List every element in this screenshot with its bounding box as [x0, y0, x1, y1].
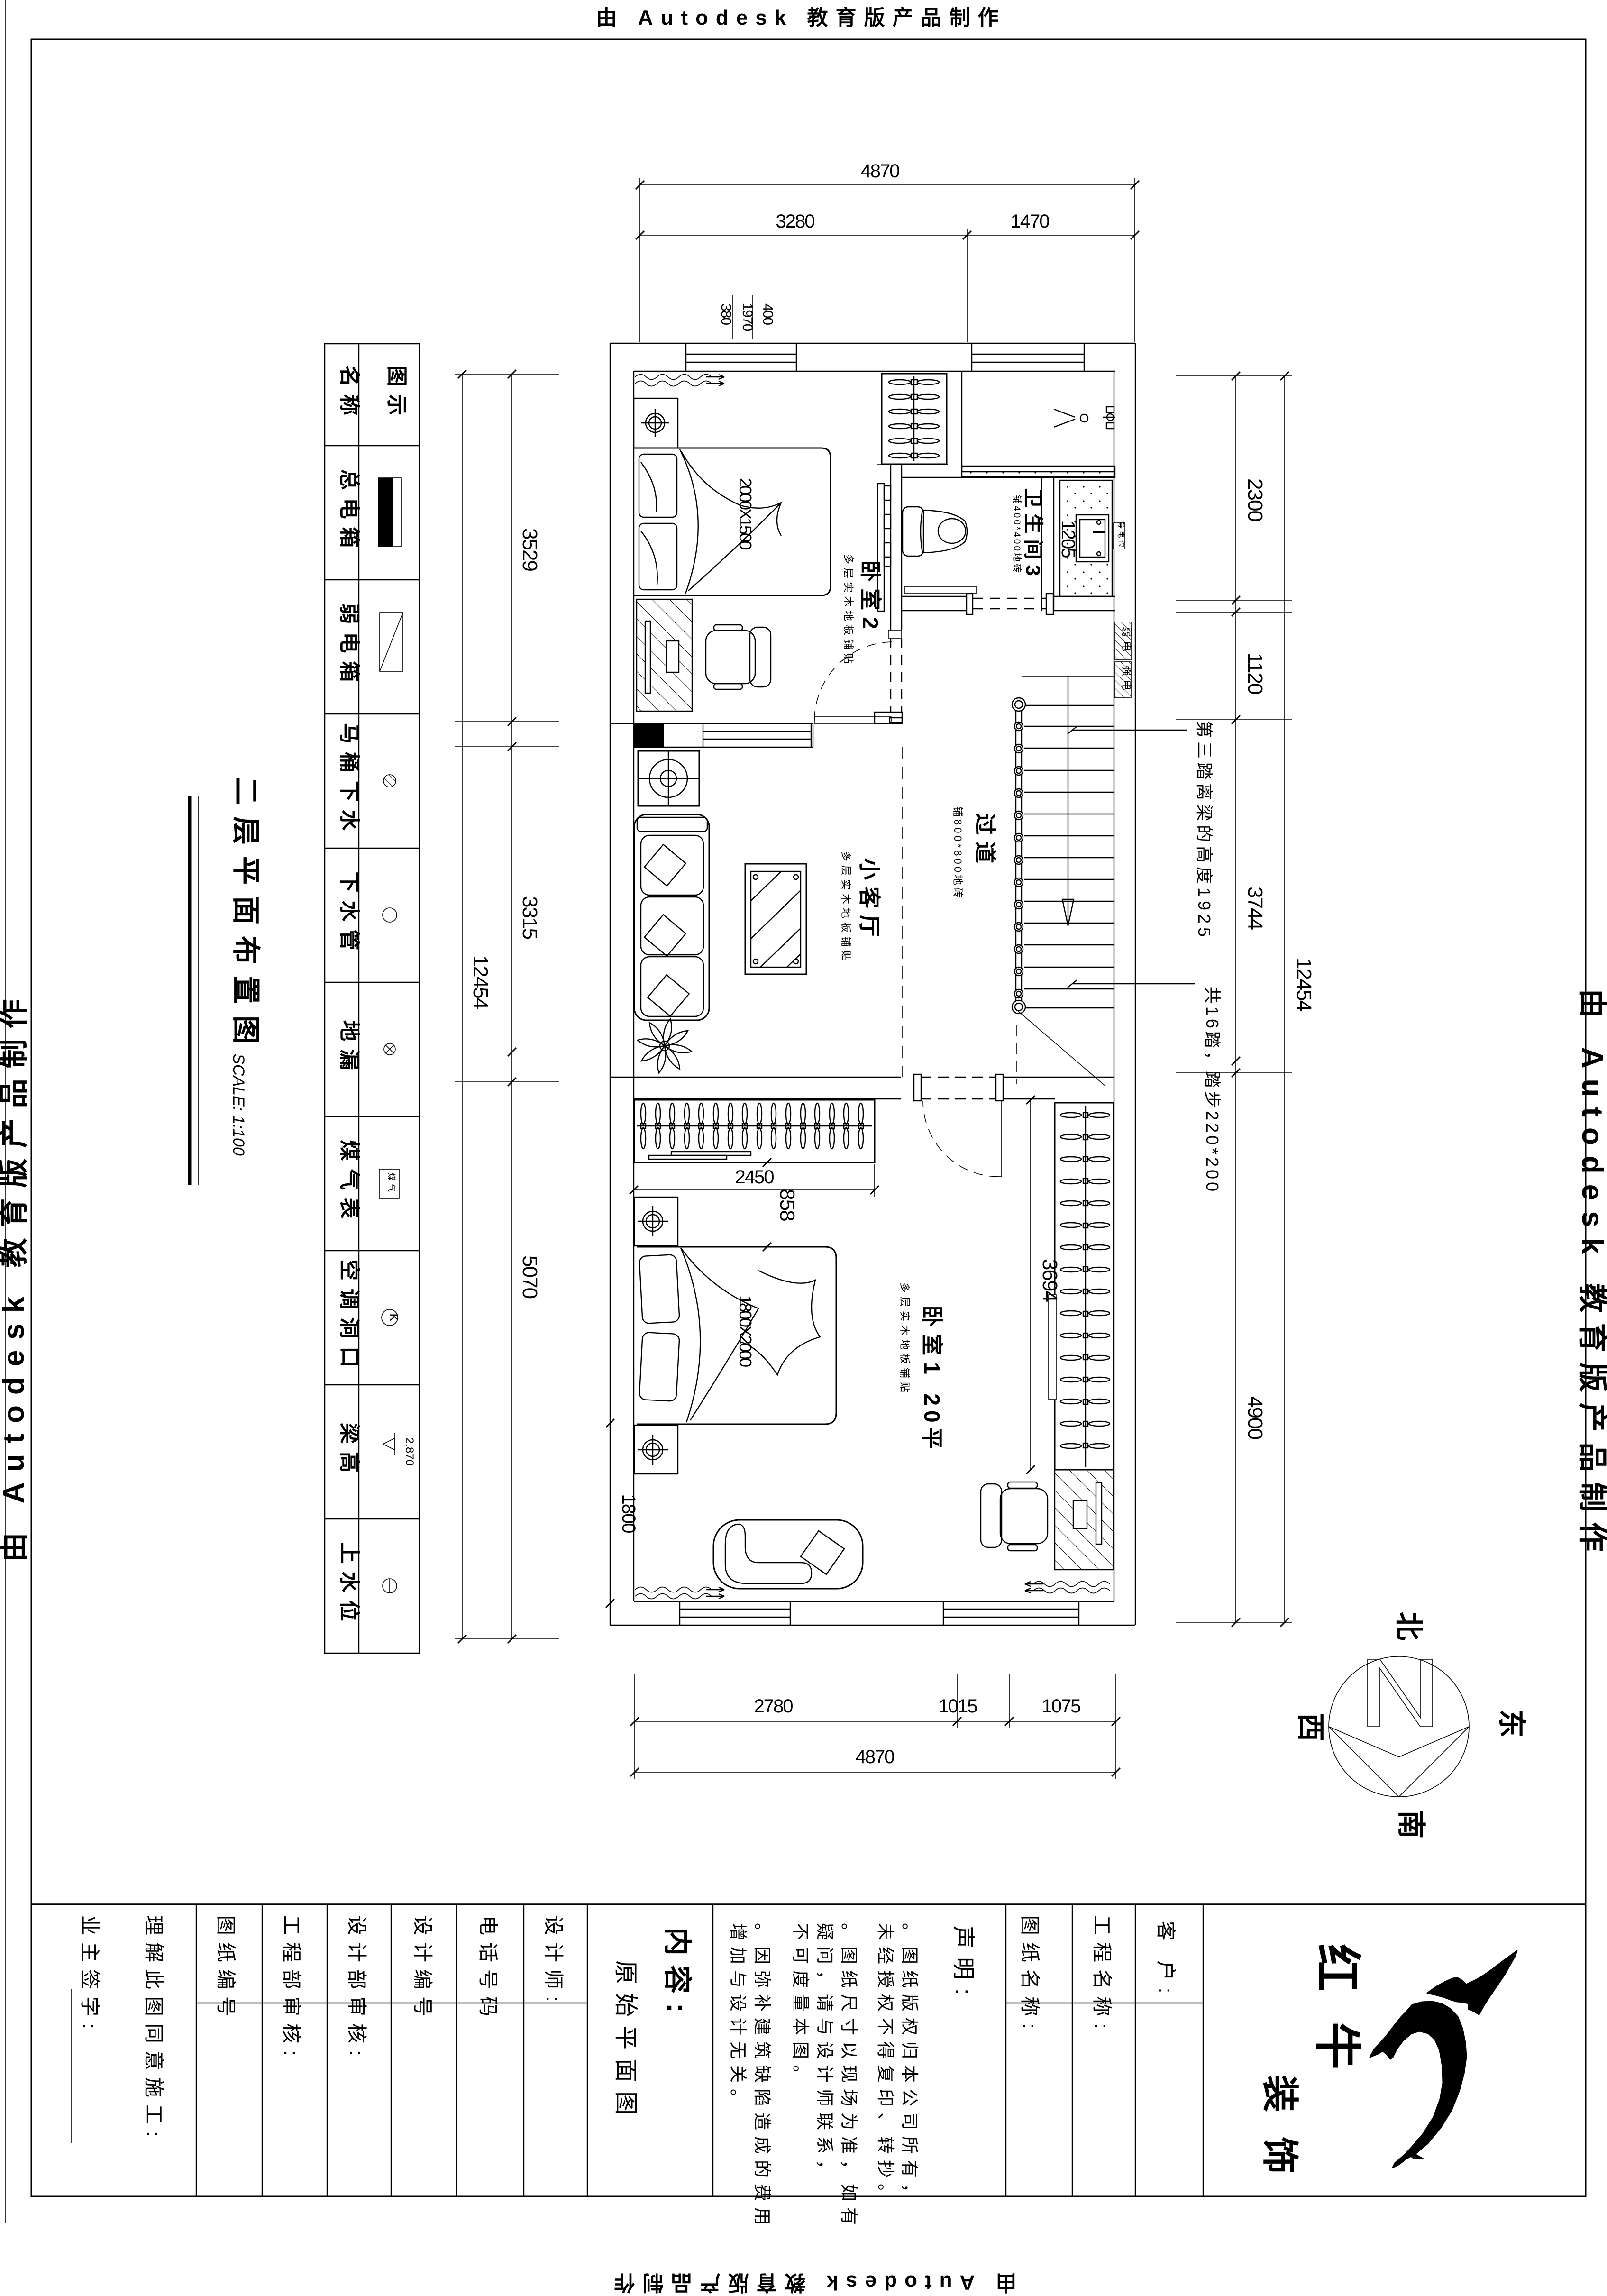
svg-text:名称: 名称	[338, 366, 361, 423]
svg-text:不可度量本图。: 不可度量本图。	[791, 1923, 810, 2089]
svg-text:地漏: 地漏	[338, 1020, 361, 1078]
svg-text:多层实木地板铺贴: 多层实木地板铺贴	[899, 1282, 911, 1396]
svg-text:20平: 20平	[920, 1393, 944, 1454]
svg-text:1015: 1015	[939, 1696, 977, 1717]
svg-text:1970: 1970	[740, 303, 755, 331]
svg-text:电话号码: 电话号码	[477, 1915, 499, 2023]
svg-text:梁高: 梁高	[338, 1423, 361, 1481]
svg-text:未经授权不得复印、转抄。: 未经授权不得复印、转抄。	[876, 1923, 895, 2207]
svg-text:工程部审核:: 工程部审核:	[280, 1915, 302, 2063]
svg-text:小客厅: 小客厅	[857, 858, 882, 943]
svg-text:马桶下水: 马桶下水	[338, 723, 361, 839]
svg-text:3315: 3315	[518, 896, 541, 939]
svg-text:工程名称:: 工程名称:	[1091, 1915, 1113, 2036]
svg-text:饰: 饰	[1259, 2137, 1301, 2174]
svg-text:第三踏离梁的高度1925: 第三踏离梁的高度1925	[1195, 721, 1214, 941]
svg-text:卧室2: 卧室2	[858, 560, 883, 636]
svg-text:煤气表: 煤气表	[338, 1140, 361, 1227]
svg-text:SCALE: 1:100: SCALE: 1:100	[229, 1053, 247, 1156]
svg-text:业主签字:: 业主签字:	[79, 1915, 101, 2036]
svg-text:牛: 牛	[1310, 2022, 1363, 2069]
svg-text:1075: 1075	[1042, 1696, 1081, 1717]
svg-text:弱电: 弱电	[1121, 627, 1132, 655]
svg-text:西: 西	[1295, 1713, 1326, 1741]
svg-text:设计师:: 设计师:	[542, 1915, 565, 2009]
svg-text:2780: 2780	[754, 1696, 793, 1717]
svg-text:设计编号: 设计编号	[411, 1915, 434, 2023]
svg-text:客 户:: 客 户:	[1155, 1921, 1177, 2000]
svg-text:1470: 1470	[1011, 211, 1050, 232]
svg-text:煤气: 煤气	[387, 1173, 396, 1195]
svg-text:2000X1500: 2000X1500	[736, 478, 755, 549]
svg-text:由 Autodesk 教育版产品制作: 由 Autodesk 教育版产品制作	[607, 2271, 1017, 2294]
svg-text:原始平面图: 原始平面图	[612, 1960, 639, 2124]
svg-text:858: 858	[776, 1189, 799, 1221]
svg-text:卧室1: 卧室1	[920, 1305, 944, 1381]
svg-text:图示: 图示	[385, 366, 408, 423]
svg-text:弱电箱: 弱电箱	[338, 604, 361, 690]
svg-text:装: 装	[1259, 2075, 1301, 2112]
svg-text:南: 南	[1395, 1810, 1427, 1839]
svg-text:。图纸版权归本公司所有，: 。图纸版权归本公司所有，	[900, 1923, 919, 2207]
svg-text:12454: 12454	[1292, 958, 1315, 1012]
svg-text:过道: 过道	[973, 813, 997, 870]
svg-text:等电位: 等电位	[1117, 521, 1126, 550]
svg-text:1800X2000: 1800X2000	[736, 1295, 755, 1367]
svg-text:4870: 4870	[856, 1747, 895, 1767]
svg-text:东: 东	[1496, 1709, 1527, 1738]
svg-text:由 Autodesk 教育版产品制作: 由 Autodesk 教育版产品制作	[0, 989, 30, 1562]
svg-text:2450: 2450	[735, 1167, 774, 1188]
svg-text:400: 400	[760, 303, 776, 325]
svg-text:疑问，请与设计师联系，: 疑问，请与设计师联系，	[815, 1923, 834, 2184]
svg-text:卫生间3: 卫生间3	[1022, 488, 1044, 581]
svg-text:声明:: 声明:	[950, 1926, 976, 2003]
svg-text:增加与设计无关。: 增加与设计无关。	[728, 1923, 748, 2113]
svg-text:5070: 5070	[518, 1255, 541, 1298]
svg-text:3744: 3744	[1243, 887, 1267, 930]
svg-text:共16踏，踏步220*200: 共16踏，踏步220*200	[1203, 987, 1222, 1194]
svg-text:总电箱: 总电箱	[338, 469, 361, 556]
svg-text:1120: 1120	[1243, 653, 1267, 694]
svg-text:铺400*400地砖: 铺400*400地砖	[1012, 495, 1022, 575]
svg-text:内容:: 内容:	[661, 1927, 693, 2022]
svg-text:红: 红	[1310, 1944, 1363, 1991]
svg-text:12454: 12454	[469, 955, 492, 1009]
svg-text:上水位: 上水位	[338, 1543, 361, 1629]
svg-text:图纸名称:: 图纸名称:	[1019, 1915, 1041, 2036]
svg-text:多层实木地板铺贴: 多层实木地板铺贴	[840, 851, 852, 965]
svg-text:3694: 3694	[1038, 1259, 1061, 1302]
svg-text:空调洞口: 空调洞口	[338, 1260, 361, 1375]
svg-text:3280: 3280	[776, 211, 815, 232]
svg-text:强电: 强电	[1121, 666, 1132, 694]
svg-text:1800: 1800	[618, 1494, 639, 1533]
svg-text:。图纸尺寸以现场为准，如有: 。图纸尺寸以现场为准，如有	[839, 1923, 858, 2231]
svg-text:2300: 2300	[1243, 478, 1267, 521]
svg-text:K: K	[387, 1313, 401, 1322]
svg-text:4870: 4870	[861, 161, 900, 182]
svg-text:下水管: 下水管	[338, 872, 361, 959]
svg-text:图纸编号: 图纸编号	[215, 1915, 237, 2023]
svg-text:。因弥补建筑缺陷造成的费用: 。因弥补建筑缺陷造成的费用	[752, 1923, 772, 2231]
svg-text:4900: 4900	[1243, 1396, 1267, 1439]
svg-text:3529: 3529	[518, 528, 541, 571]
svg-text:铺800*800地砖: 铺800*800地砖	[952, 806, 964, 900]
svg-text:380: 380	[718, 303, 734, 325]
svg-text:2.870: 2.870	[403, 1437, 416, 1466]
svg-text:设计部审核:: 设计部审核:	[346, 1915, 368, 2063]
svg-text:北: 北	[1393, 1612, 1424, 1640]
svg-text:由 Autodesk 教育版产品制作: 由 Autodesk 教育版产品制作	[1576, 989, 1607, 1562]
svg-text:多层实木地板铺贴: 多层实木地板铺贴	[842, 554, 854, 668]
svg-text:由 Autodesk 教育版产品制作: 由 Autodesk 教育版产品制作	[596, 6, 1006, 29]
svg-text:理解此图同意施工:: 理解此图同意施工:	[143, 1915, 165, 2144]
svg-text:二层平面布置图: 二层平面布置图	[230, 777, 262, 1055]
